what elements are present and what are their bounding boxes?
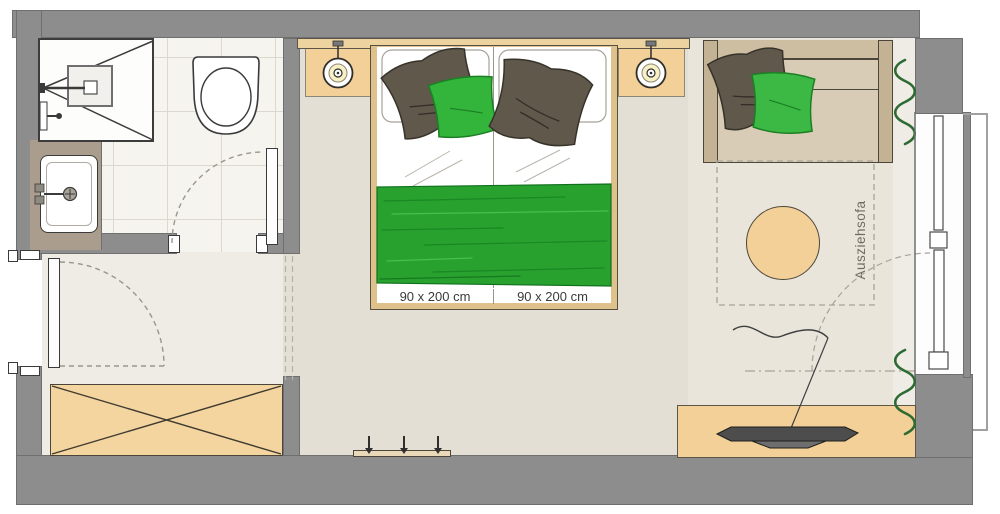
wall-top <box>12 10 920 38</box>
wardrobe <box>50 384 283 456</box>
bathroom-door-post-left <box>168 235 180 253</box>
mattress-right <box>494 47 611 288</box>
tv-sideboard <box>677 405 916 458</box>
sofa-extension-label: Ausziehsofa <box>853 165 869 315</box>
sofa-armrest-left <box>703 40 718 163</box>
nightstand-left <box>305 49 372 97</box>
sink-basin-inner <box>46 162 92 226</box>
sofa-armrest-right <box>878 40 893 163</box>
sofa-backrest <box>718 40 878 59</box>
entry-door-leaf <box>48 258 60 368</box>
wall-top-right-block <box>915 38 963 114</box>
entry-door-outer-tick-top <box>8 250 18 262</box>
bathroom-door-leaf <box>266 148 278 245</box>
mattress-right-label: 90 x 200 cm <box>494 289 611 304</box>
entry-door-post-top <box>20 250 40 260</box>
window-floor-strip <box>893 38 915 457</box>
wall-left-lower <box>16 366 42 466</box>
side-table-round <box>746 206 820 280</box>
entry-door-post-bottom <box>20 366 40 376</box>
floor-plan: 90 x 200 cm 90 x 200 cm Ausziehsofa <box>0 0 1000 514</box>
mattress-left-label: 90 x 200 cm <box>377 289 494 304</box>
wall-bathroom-bedroom <box>283 38 300 254</box>
coat-hooks-bracket <box>353 450 451 457</box>
wall-corridor-pillar <box>283 376 300 456</box>
mattress-left <box>377 47 494 288</box>
balcony-bay-floor <box>915 112 963 378</box>
entry-door-outer-tick-bottom <box>8 362 18 374</box>
wall-bottom <box>16 455 973 505</box>
shower <box>38 38 154 142</box>
wall-bay-outer <box>963 112 971 378</box>
wall-bottom-right-block <box>915 374 973 458</box>
nightstand-right <box>618 49 685 97</box>
